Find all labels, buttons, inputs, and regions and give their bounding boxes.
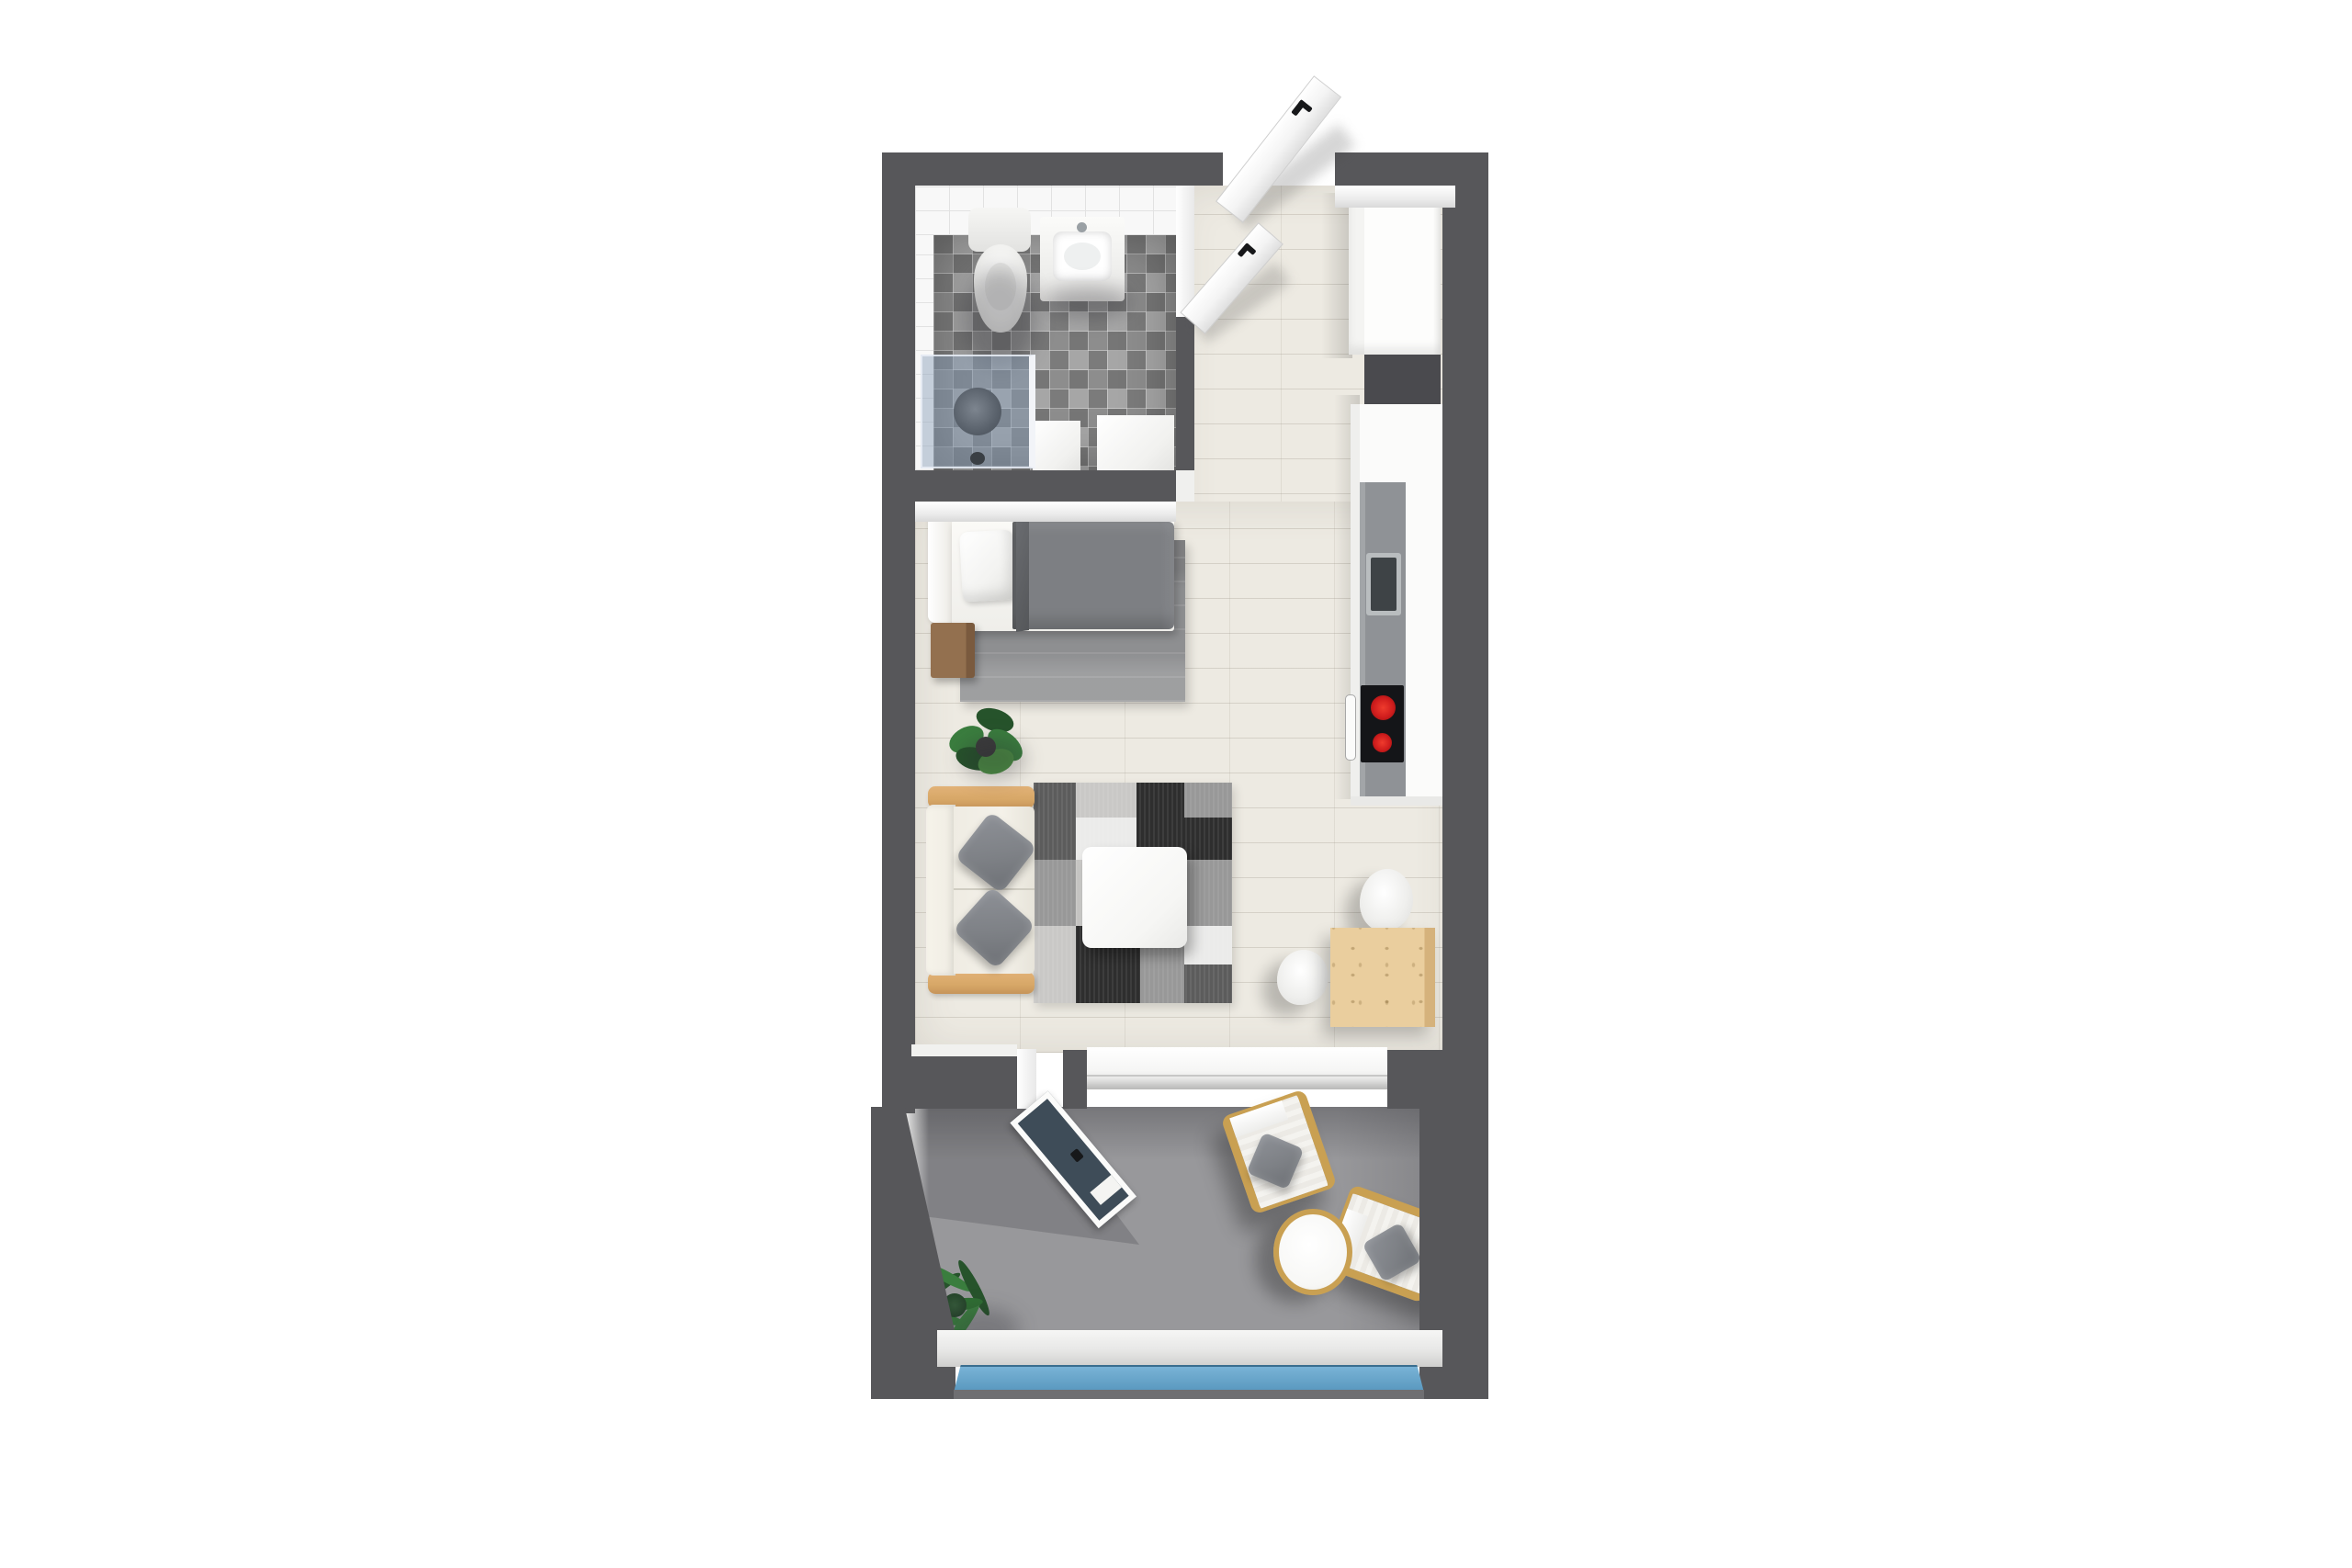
wall-balcony-partition-left <box>911 1056 1017 1109</box>
burner-icon <box>1371 695 1396 720</box>
wall-bathroom-bottom <box>882 470 1176 502</box>
wall-face-entry <box>1335 186 1455 208</box>
sofa <box>926 786 1036 994</box>
kitchen-tall-cabinet <box>1349 186 1441 355</box>
wall-end-cap <box>1176 470 1194 502</box>
sink-bowl <box>1064 243 1101 270</box>
bed-duvet <box>1012 522 1174 629</box>
plant-shadow <box>961 739 1025 779</box>
window-sill <box>1087 1047 1387 1089</box>
lounge-pillow <box>1362 1223 1422 1283</box>
bedroom-plant <box>944 707 1027 788</box>
glass-railing <box>954 1365 1424 1393</box>
wall-face-bedroom <box>915 502 1176 522</box>
burner-icon <box>1373 733 1392 752</box>
washer-block <box>1097 415 1174 470</box>
cooktop <box>1361 685 1404 762</box>
sink-frame <box>1366 553 1401 615</box>
bathroom-storage-block <box>1033 421 1080 470</box>
kitchen-sink <box>1371 558 1396 611</box>
bed-headboard <box>928 513 954 623</box>
door-handle-icon <box>1243 243 1257 255</box>
wall-balcony-partition-mid <box>1063 1050 1087 1109</box>
cabinet-shadow <box>1321 193 1352 358</box>
partition-top-edge <box>911 1044 1017 1056</box>
coffee-table <box>1082 847 1187 948</box>
bed-pillow <box>959 530 1016 603</box>
sill-edge-line <box>1087 1075 1387 1077</box>
wall-bathroom-right <box>1176 317 1194 470</box>
vanity-shadow <box>1044 287 1132 318</box>
oven-handle <box>1345 694 1356 761</box>
table-wood-grain <box>1330 928 1435 1027</box>
wall-left <box>882 152 915 1113</box>
kitchen-counter <box>1351 404 1442 806</box>
wall-balcony-partition-right <box>1387 1050 1457 1109</box>
bathroom-door-jamb <box>1176 186 1194 317</box>
wall-top-left <box>882 152 1223 186</box>
bathroom <box>915 186 1176 470</box>
door-handle-icon <box>1069 1148 1083 1163</box>
parapet-bottom-edge <box>954 1390 1424 1399</box>
counter-end-face <box>1351 796 1442 806</box>
shower-drain <box>970 452 985 465</box>
parapet-inner-face <box>937 1330 1442 1367</box>
cabinet-gap-shadow <box>1364 355 1441 404</box>
door-end-rail <box>1090 1175 1122 1205</box>
sink-faucet <box>1077 222 1087 232</box>
shower-glass-enclosure <box>921 355 1035 468</box>
sofa-backrest <box>926 805 955 976</box>
round-side-table <box>1273 1209 1352 1295</box>
nightstand <box>931 623 975 678</box>
balcony-door-jamb <box>1017 1049 1036 1109</box>
lounge-pillow <box>1247 1132 1305 1190</box>
duvet-fold <box>1016 519 1029 632</box>
studio-apartment-floor-plan <box>0 0 2352 1568</box>
dining-table <box>1330 928 1435 1027</box>
shower-head-icon <box>954 388 1001 435</box>
single-bed <box>952 520 1174 631</box>
